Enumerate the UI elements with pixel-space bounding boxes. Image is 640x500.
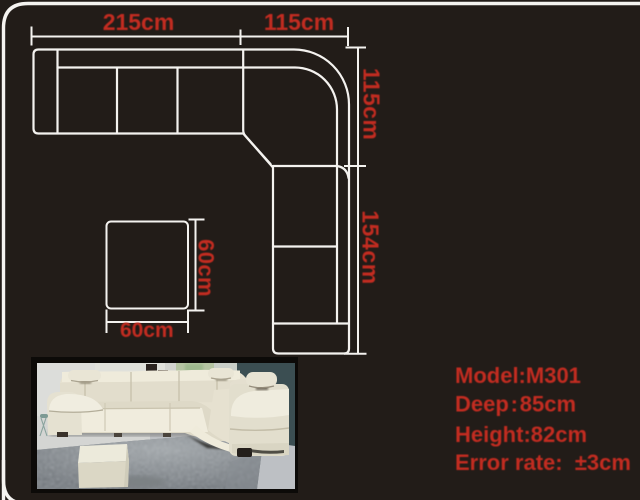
svg-text:115cm: 115cm bbox=[359, 68, 385, 140]
svg-text:Height:82cm: Height:82cm bbox=[455, 422, 587, 447]
svg-text:60cm: 60cm bbox=[120, 319, 174, 342]
svg-text:Model:M301: Model:M301 bbox=[455, 363, 581, 388]
svg-text:Deep : 85cm: Deep : 85cm bbox=[455, 391, 576, 416]
svg-text:215cm: 215cm bbox=[103, 9, 175, 35]
svg-text:154cm: 154cm bbox=[358, 210, 384, 285]
svg-text:60cm: 60cm bbox=[194, 239, 219, 297]
svg-text:Error rate: ±3cm: Error rate: ±3cm bbox=[455, 450, 631, 475]
svg-text:115cm: 115cm bbox=[264, 9, 334, 35]
